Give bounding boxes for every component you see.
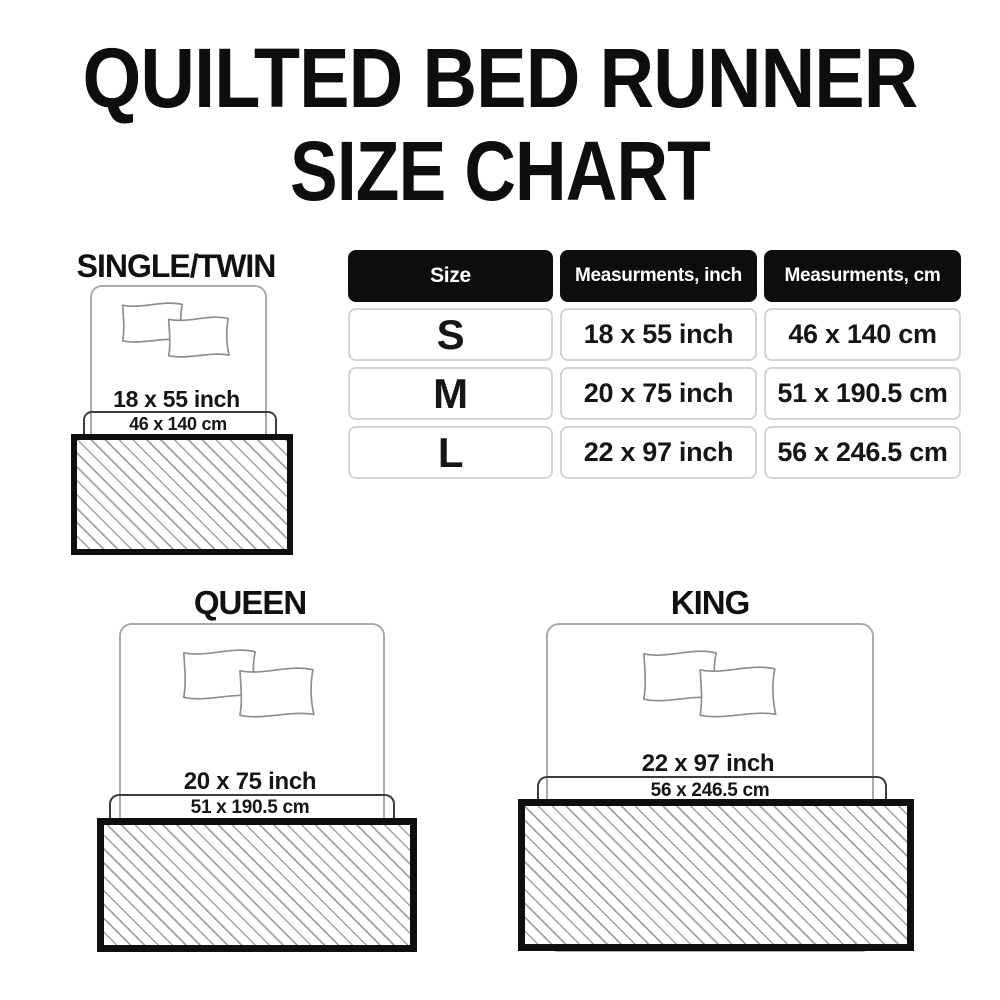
table-cell-cm-l: 56 x 246.5 cm xyxy=(764,426,961,479)
table-header-inch: Measurments, inch xyxy=(560,250,757,302)
table-cell-inch-l: 22 x 97 inch xyxy=(560,426,757,479)
size-label-inch: 22 x 97 inch xyxy=(546,750,870,778)
table-header-size: Size xyxy=(348,250,553,302)
table-cell-cm-s: 46 x 140 cm xyxy=(764,308,961,361)
size-label-cm: 51 x 190.5 cm xyxy=(109,797,391,819)
bed-runner-swatch xyxy=(518,799,914,951)
section-label-king: KING xyxy=(520,584,900,622)
table-cell-inch-m: 20 x 75 inch xyxy=(560,367,757,420)
bed-runner-swatch xyxy=(97,818,417,952)
pillow-icon xyxy=(163,313,234,362)
pillow-icon xyxy=(233,663,320,723)
page-title-line2: SIZE CHART xyxy=(75,129,925,213)
table-cell-size-l: L xyxy=(348,426,553,479)
table-header-cm: Measurments, cm xyxy=(764,250,961,302)
pillow-icon xyxy=(693,662,782,723)
size-chart-infographic: QUILTED BED RUNNER SIZE CHART SINGLE/TWI… xyxy=(0,0,1000,1000)
bed-diagram-single-twin: SINGLE/TWIN 18 x 55 inch 46 x 140 cm xyxy=(56,245,296,565)
table-cell-inch-s: 18 x 55 inch xyxy=(560,308,757,361)
size-label-inch: 20 x 75 inch xyxy=(119,768,381,796)
page-title-line1: QUILTED BED RUNNER xyxy=(50,36,950,120)
bed-diagram-king: KING 22 x 97 inch 56 x 246.5 cm xyxy=(520,580,900,955)
table-cell-size-m: M xyxy=(348,367,553,420)
bed-runner-swatch xyxy=(71,434,293,555)
section-label-single-twin: SINGLE/TWIN xyxy=(56,248,296,285)
table-cell-cm-m: 51 x 190.5 cm xyxy=(764,367,961,420)
section-label-queen: QUEEN xyxy=(95,584,405,622)
size-label-inch: 18 x 55 inch xyxy=(90,386,263,413)
size-table: Size Measurments, inch Measurments, cm S… xyxy=(348,250,961,479)
size-label-cm: 46 x 140 cm xyxy=(83,414,273,435)
table-cell-size-s: S xyxy=(348,308,553,361)
bed-diagram-queen: QUEEN 20 x 75 inch 51 x 190.5 cm xyxy=(95,580,405,955)
size-label-cm: 56 x 246.5 cm xyxy=(537,780,883,802)
